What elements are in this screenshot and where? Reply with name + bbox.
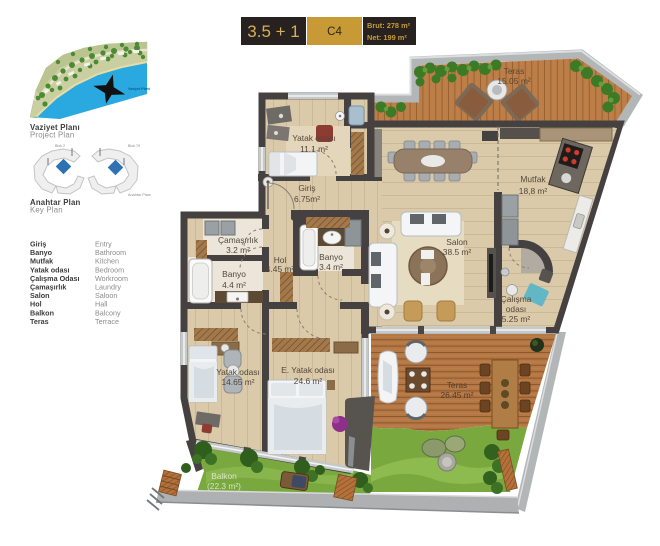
svg-text:Banyo: Banyo [319,252,343,262]
svg-text:18,8 m²: 18,8 m² [519,186,548,196]
svg-text:Terrace: Terrace [95,317,119,326]
svg-text:Mutfak: Mutfak [520,174,546,184]
svg-text:Blok 2: Blok 2 [55,144,65,148]
svg-text:Teras: Teras [504,66,525,76]
svg-text:Yatak odası: Yatak odası [292,133,336,143]
svg-text:Net: 199 m²: Net: 199 m² [367,33,407,42]
svg-text:Teras: Teras [30,317,49,326]
svg-text:Balkon: Balkon [211,471,237,481]
svg-text:(22.3 m²): (22.3 m²) [207,481,241,491]
svg-text:Salon: Salon [446,237,468,247]
svg-text:Giriş: Giriş [298,183,315,193]
svg-text:38.5 m²: 38.5 m² [443,247,472,257]
svg-text:Çalışma: Çalışma [501,294,532,304]
svg-text:Anahtar Planı: Anahtar Planı [128,193,151,197]
svg-text:Banyo: Banyo [222,269,246,279]
svg-text:3.4 m²: 3.4 m² [319,262,343,272]
svg-text:Teras: Teras [447,380,467,390]
svg-text:E. Yatak odası: E. Yatak odası [281,365,335,375]
svg-text:3.5 + 1: 3.5 + 1 [247,22,299,41]
svg-text:Project Plan: Project Plan [30,131,74,140]
svg-text:C4: C4 [327,26,342,38]
svg-text:24.6 m²: 24.6 m² [294,376,323,386]
svg-text:Key Plan: Key Plan [30,206,63,215]
svg-text:26.45 m²: 26.45 m² [440,390,473,400]
svg-text:4.4 m²: 4.4 m² [222,280,246,290]
svg-text:Blok 79: Blok 79 [128,144,140,148]
svg-text:Çamaşırlık: Çamaşırlık [218,235,259,245]
svg-text:odası: odası [506,304,527,314]
svg-text:15.05 m²: 15.05 m² [497,76,531,86]
svg-text:3.2 m²: 3.2 m² [226,245,250,255]
svg-text:Yatak odası: Yatak odası [216,367,260,377]
svg-text:Brut: 278 m²: Brut: 278 m² [367,21,411,30]
svg-text:5.25 m²: 5.25 m² [502,314,531,324]
svg-text:Vaziyet Plani: Vaziyet Plani [128,87,150,91]
svg-text:14.65 m²: 14.65 m² [221,377,254,387]
svg-text:4.45 m²: 4.45 m² [266,264,295,274]
svg-text:6.75m²: 6.75m² [294,194,320,204]
svg-text:11.1 m²: 11.1 m² [300,144,328,154]
